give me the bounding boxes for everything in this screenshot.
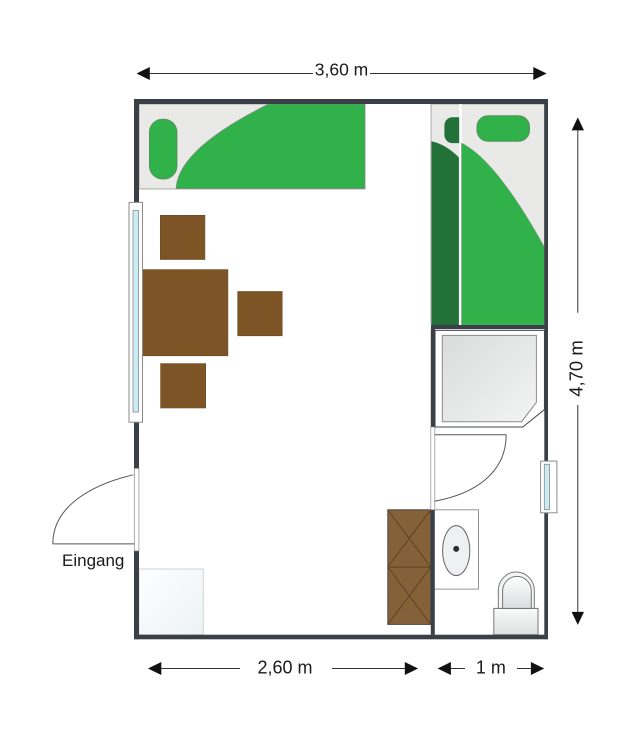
svg-text:4,70 m: 4,70 m — [566, 340, 587, 397]
svg-text:Eingang: Eingang — [62, 551, 124, 570]
svg-text:2,60 m: 2,60 m — [257, 658, 312, 678]
svg-text:1 m: 1 m — [476, 658, 506, 678]
svg-text:3,60 m: 3,60 m — [315, 60, 369, 80]
